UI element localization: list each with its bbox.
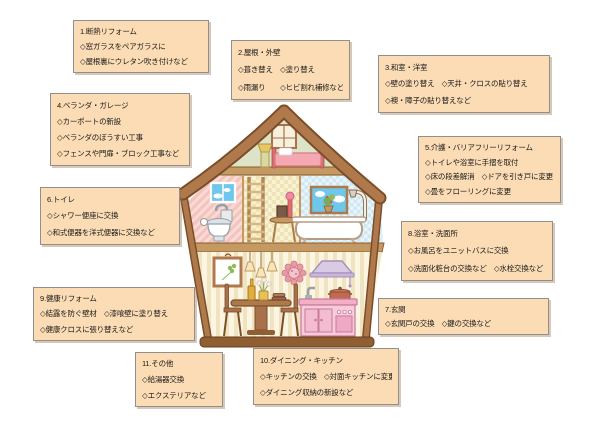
category-box-health: 9.健康リフォーム ◇結露を防ぐ壁材 ◇漆喰壁に塗り替え ◇健康クロスに張り替え… — [33, 287, 195, 341]
category-item: ◇襖・障子の貼り替えなど — [385, 96, 543, 105]
category-box-japanese-western-rooms: 3.和室・洋室 ◇壁の塗り替え ◇天井・クロスの貼り替え ◇襖・障子の貼り替えな… — [378, 55, 550, 113]
category-title: 3.和室・洋室 — [385, 63, 543, 72]
category-item: ◇雨漏り ◇ヒビ割れ補修など — [238, 83, 343, 92]
category-item: ◇窓ガラスをペアガラスに — [80, 42, 202, 51]
category-item: ◇フェンスや門扉・ブロック工事など — [57, 149, 183, 158]
attic-arched-window-icon — [272, 125, 296, 148]
attic-floor — [213, 167, 353, 175]
category-item: ◇キッチンの交換 ◇対面キッチンに変更 — [260, 372, 392, 381]
picture-frame-icon — [214, 254, 241, 286]
category-title: 6.トイレ — [47, 195, 173, 204]
category-item: ◇健康クロスに張り替えなど — [40, 325, 188, 334]
category-title: 7.玄関 — [385, 305, 542, 314]
category-box-barrier-free: 5.介護・バリアフリーリフォーム ◇トイレや浴室に手摺を取付 ◇床の段差解消 ◇… — [418, 136, 561, 203]
category-title: 8.浴室・洗面所 — [408, 229, 546, 238]
category-item: ◇カーポートの新設 — [57, 117, 183, 126]
category-item: ◇和式便器を洋式便器に交換など — [47, 228, 173, 237]
category-title: 4.ベランダ・ガレージ — [57, 101, 183, 110]
floor-band — [189, 243, 384, 252]
category-item: ◇シャワー便座に交換 — [47, 211, 173, 220]
category-box-bathroom-washroom: 8.浴室・洗面所 ◇お風呂をユニットバスに交換 ◇洗面化粧台の交換など ◇水栓交… — [401, 221, 553, 281]
renovation-diagram: 1.断熱リフォーム ◇窓ガラスをペアガラスに ◇屋根裏にウレタン吹き付けなど 2… — [0, 0, 600, 426]
category-title: 11.その他 — [142, 359, 216, 368]
category-box-roof-exterior: 2.屋根・外壁 ◇葺き替え ◇塗り替え ◇雨漏り ◇ヒビ割れ補修など — [231, 40, 350, 100]
category-item: ◇洗面化粧台の交換など ◇水栓交換など — [408, 264, 546, 273]
category-title: 2.屋根・外壁 — [238, 48, 343, 57]
category-item: ◇葺き替え ◇塗り替え — [238, 65, 343, 74]
flower-clock-icon — [282, 261, 306, 285]
category-item: ◇玄関戸の交換 ◇鍵の交換など — [385, 319, 542, 328]
category-item: ◇トイレや浴室に手摺を取付 — [425, 158, 554, 167]
category-item: ◇壁の塗り替え ◇天井・クロスの貼り替え — [385, 79, 543, 88]
bathroom-window-icon — [311, 187, 347, 213]
plate-stack-icon — [272, 294, 286, 301]
second-floor — [184, 176, 383, 244]
category-item: ◇床の段差解消 ◇ドアを引き戸に変更 — [425, 172, 554, 181]
category-item: ◇ダイニング収納の新設など — [260, 388, 392, 397]
ground-floor — [191, 252, 382, 338]
category-box-insulation: 1.断熱リフォーム ◇窓ガラスをペアガラスに ◇屋根裏にウレタン吹き付けなど — [73, 20, 209, 73]
category-box-veranda-garage: 4.ベランダ・ガレージ ◇カーポートの新設 ◇ベランダのぼうすい工事 ◇フェンス… — [50, 93, 190, 166]
category-title: 10.ダイニング・キッチン — [260, 356, 392, 365]
category-item: ◇結露を防ぐ壁材 ◇漆喰壁に塗り替え — [40, 309, 188, 318]
category-item: ◇ベランダのぼうすい工事 — [57, 133, 183, 142]
oven-icon — [336, 310, 352, 332]
category-item: ◇屋根裏にウレタン吹き付けなど — [80, 57, 202, 66]
category-item: ◇畳をフローリングに変更 — [425, 187, 554, 196]
house-base — [200, 337, 374, 347]
category-title: 1.断熱リフォーム — [80, 27, 202, 36]
category-title: 9.健康リフォーム — [40, 294, 188, 303]
category-item: ◇エクステリアなど — [142, 391, 216, 400]
toilet-paper-icon — [201, 219, 208, 226]
category-box-entrance: 7.玄関 ◇玄関戸の交換 ◇鍵の交換など — [378, 298, 549, 335]
category-box-dining-kitchen: 10.ダイニング・キッチン ◇キッチンの交換 ◇対面キッチンに変更 ◇ダイニング… — [253, 348, 399, 405]
category-title: 5.介護・バリアフリーリフォーム — [425, 143, 554, 152]
category-box-others: 11.その他 ◇給湯器交換 ◇エクステリアなど — [135, 352, 223, 407]
category-box-toilet: 6.トイレ ◇シャワー便座に交換 ◇和式便器を洋式便器に交換など — [40, 187, 180, 245]
category-item: ◇お風呂をユニットバスに交換 — [408, 246, 546, 255]
category-item: ◇給湯器交換 — [142, 375, 216, 384]
toilet-window-icon — [211, 183, 235, 202]
kitchen-counter-icon — [299, 299, 357, 336]
